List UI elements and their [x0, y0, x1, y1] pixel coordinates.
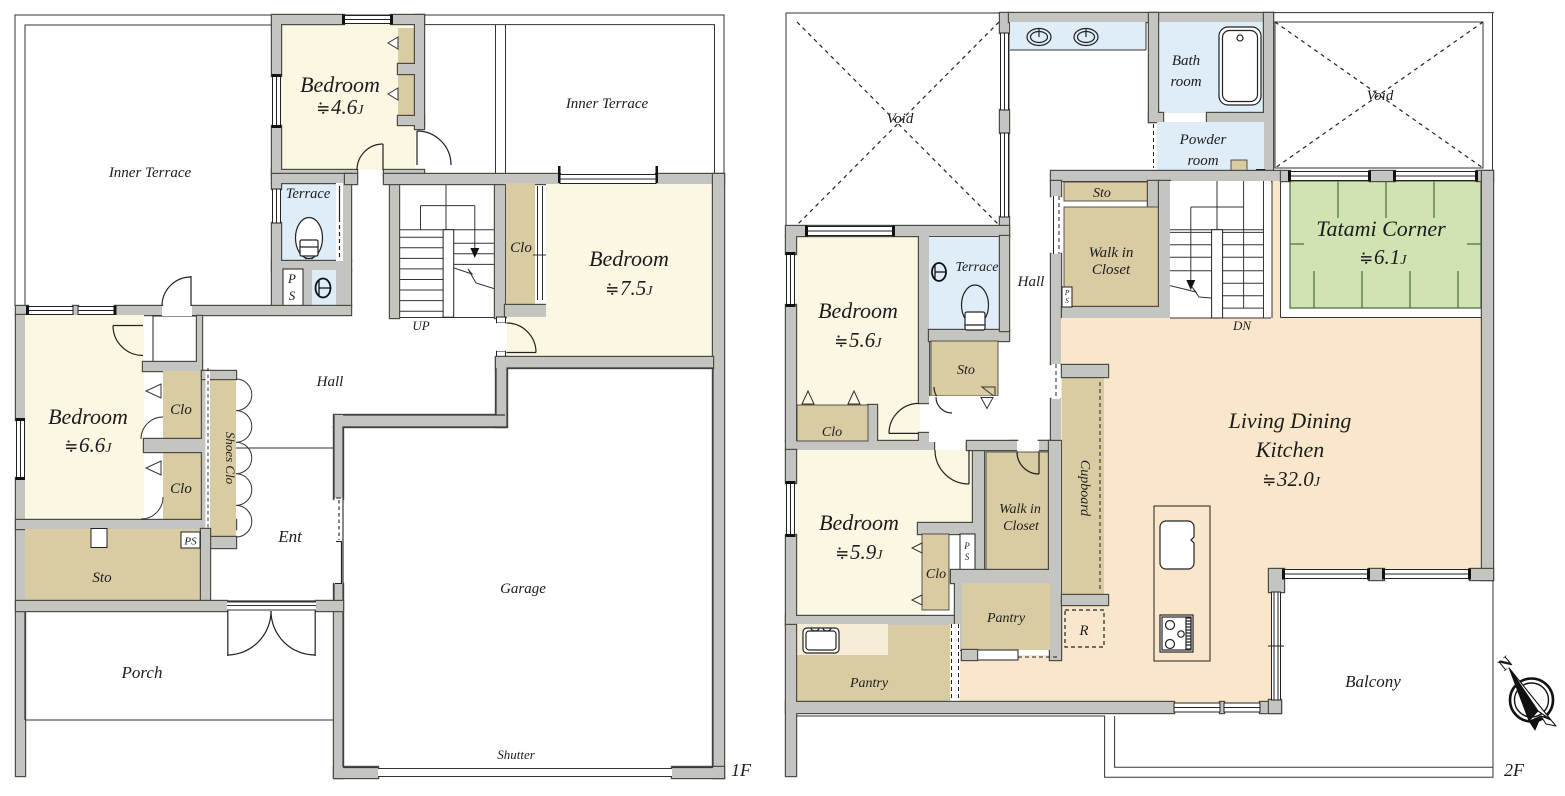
svg-text:Sto: Sto — [1093, 186, 1111, 201]
svg-text:Clo: Clo — [170, 402, 192, 418]
svg-text:Clo: Clo — [170, 481, 192, 497]
svg-text:Void: Void — [887, 111, 914, 127]
svg-text:Porch: Porch — [121, 663, 163, 682]
svg-text:Inner Terrace: Inner Terrace — [108, 165, 192, 181]
svg-text:Hall: Hall — [1017, 274, 1045, 290]
svg-text:Clo: Clo — [510, 240, 532, 256]
svg-text:P: P — [963, 541, 970, 551]
svg-text:Terrace: Terrace — [955, 260, 998, 275]
svg-text:Sto: Sto — [92, 570, 112, 586]
svg-text:Powder: Powder — [1179, 132, 1227, 148]
svg-text:Balcony: Balcony — [1345, 672, 1401, 691]
svg-text:Walk in: Walk in — [1089, 245, 1134, 261]
svg-text:S: S — [289, 288, 296, 303]
svg-text:R: R — [1078, 623, 1088, 639]
svg-text:Hall: Hall — [316, 374, 344, 390]
svg-text:PS: PS — [183, 536, 197, 548]
svg-text:Cupboard: Cupboard — [1077, 460, 1092, 517]
svg-text:Tatami Corner: Tatami Corner — [1316, 216, 1446, 241]
svg-text:S: S — [965, 552, 970, 562]
svg-text:Bath: Bath — [1172, 53, 1200, 69]
svg-text:Clo: Clo — [822, 425, 842, 440]
svg-text:Clo: Clo — [926, 567, 946, 582]
svg-text:1F: 1F — [731, 760, 752, 780]
svg-text:P: P — [287, 271, 296, 286]
svg-text:UP: UP — [412, 318, 429, 333]
svg-text:Closet: Closet — [1003, 519, 1040, 534]
svg-text:Void: Void — [1367, 88, 1394, 104]
svg-text:DN: DN — [1232, 318, 1252, 333]
svg-text:Terrace: Terrace — [286, 186, 331, 202]
svg-text:room: room — [1187, 153, 1218, 169]
svg-text:Bedroom: Bedroom — [818, 298, 898, 323]
svg-text:Sto: Sto — [957, 363, 975, 378]
svg-text:Closet: Closet — [1092, 262, 1131, 278]
svg-text:Bedroom: Bedroom — [819, 510, 899, 535]
svg-text:Garage: Garage — [500, 581, 546, 597]
svg-text:P: P — [1064, 289, 1070, 297]
svg-text:room: room — [1170, 74, 1201, 90]
svg-text:Bedroom: Bedroom — [300, 72, 380, 97]
svg-text:Ent: Ent — [277, 527, 303, 546]
svg-text:Pantry: Pantry — [986, 611, 1026, 626]
svg-text:S: S — [1065, 297, 1069, 305]
svg-text:Walk in: Walk in — [999, 502, 1041, 517]
svg-text:Inner Terrace: Inner Terrace — [565, 96, 649, 112]
svg-text:Pantry: Pantry — [849, 676, 889, 691]
svg-text:2F: 2F — [1504, 760, 1525, 780]
svg-text:Kitchen: Kitchen — [1255, 437, 1324, 462]
svg-text:Bedroom: Bedroom — [48, 404, 128, 429]
svg-text:Living Dining: Living Dining — [1228, 408, 1352, 433]
svg-text:Shutter: Shutter — [497, 747, 535, 762]
svg-text:Bedroom: Bedroom — [589, 246, 669, 271]
svg-text:Shoes Clo: Shoes Clo — [223, 432, 238, 485]
